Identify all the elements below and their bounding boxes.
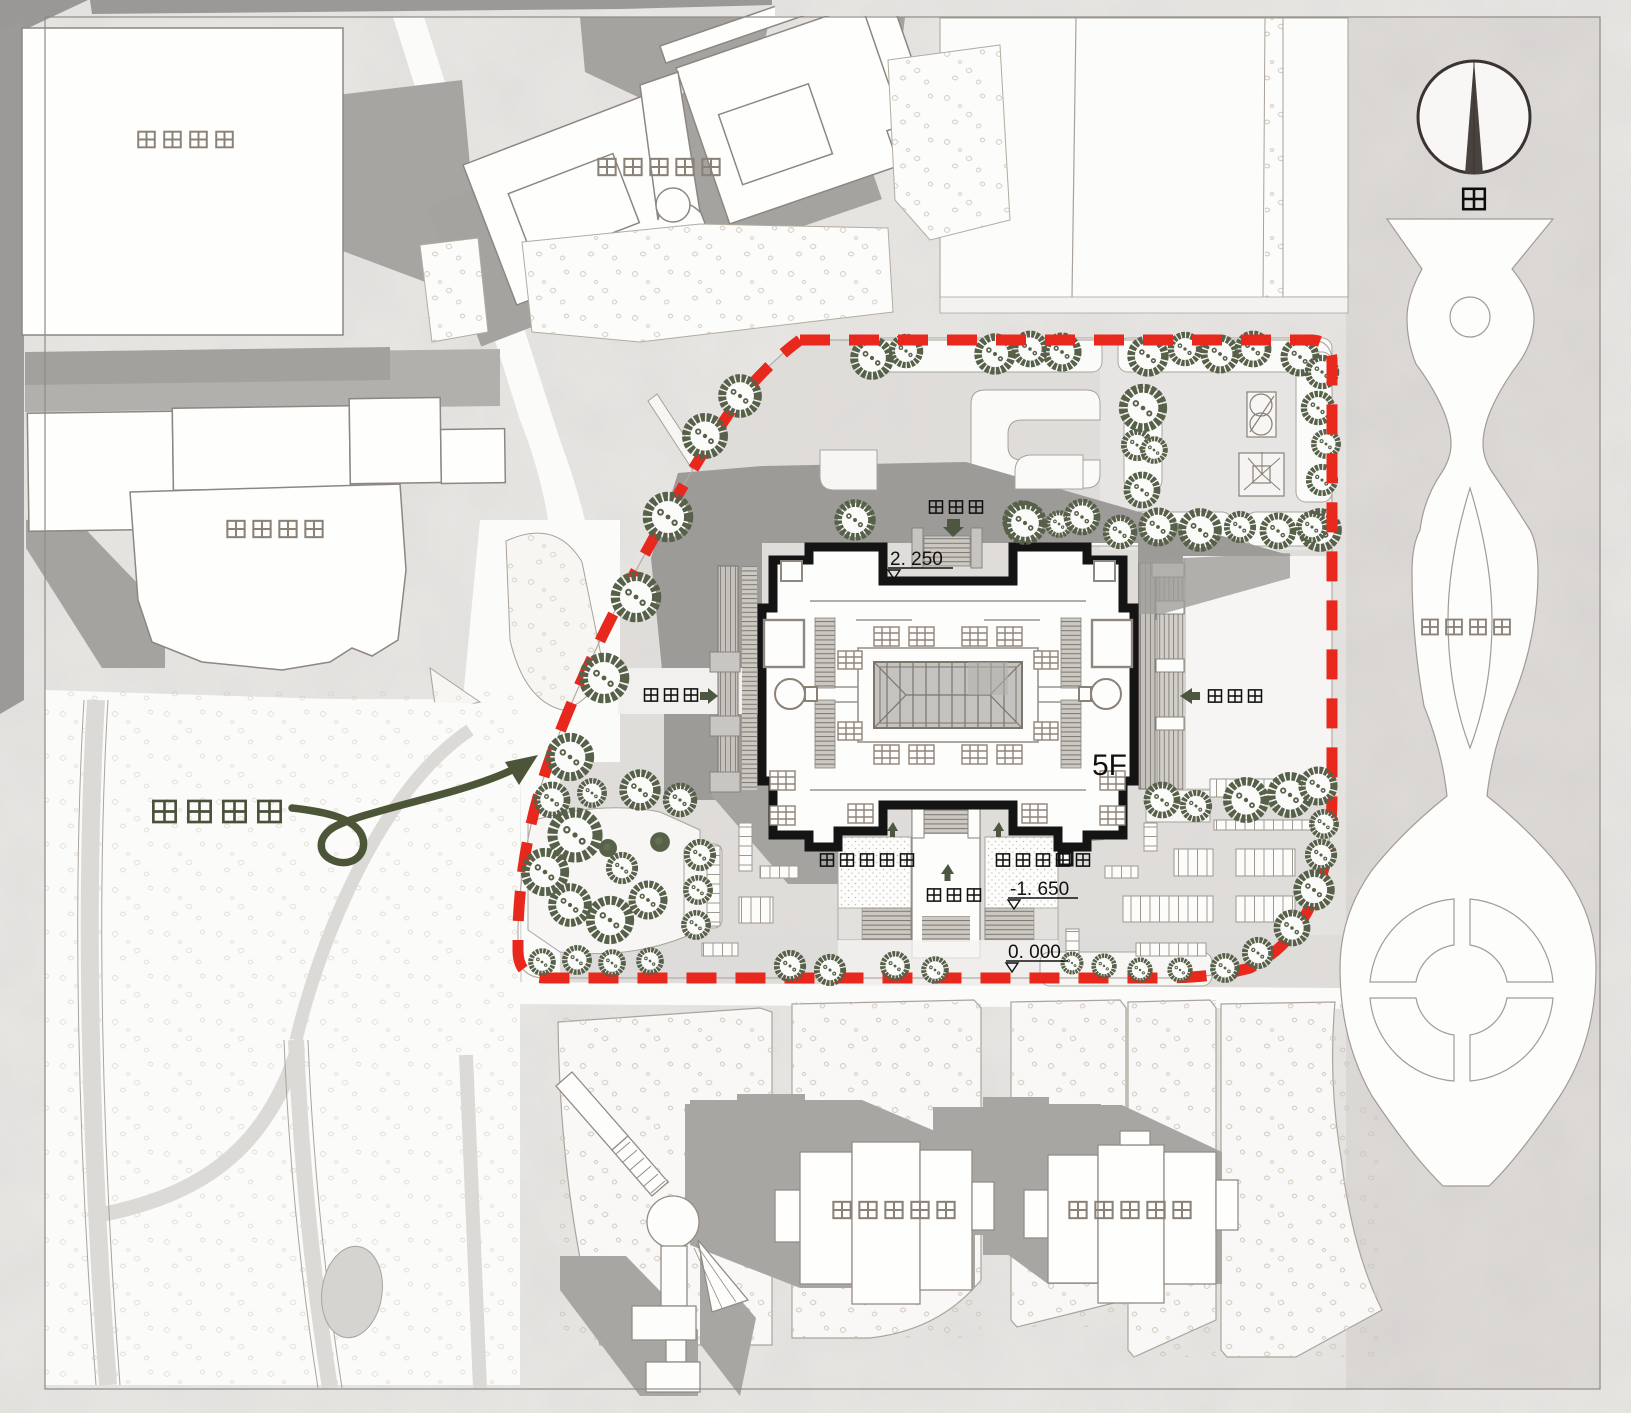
svg-text:5F: 5F bbox=[1092, 749, 1127, 782]
svg-text:-1. 650: -1. 650 bbox=[1010, 879, 1069, 900]
svg-text:2. 250: 2. 250 bbox=[890, 549, 943, 570]
svg-text:0. 000: 0. 000 bbox=[1008, 942, 1061, 963]
